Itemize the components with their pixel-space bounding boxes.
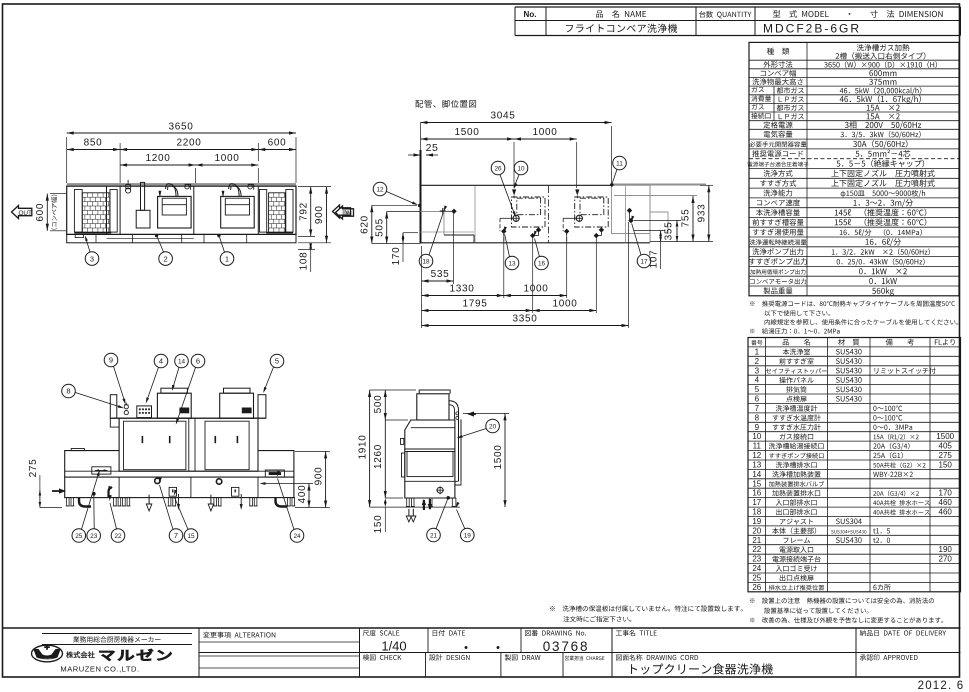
- svg-text:15: 15: [187, 533, 195, 540]
- svg-text:270: 270: [939, 555, 953, 564]
- svg-text:275: 275: [939, 451, 953, 460]
- svg-text:6: 6: [755, 395, 760, 404]
- svg-text:405: 405: [939, 442, 953, 451]
- svg-text:03768: 03768: [543, 639, 590, 654]
- svg-text:No.: No.: [524, 10, 537, 19]
- svg-text:24: 24: [752, 564, 761, 573]
- svg-text:1000: 1000: [552, 299, 577, 310]
- svg-text:16: 16: [538, 260, 546, 267]
- svg-text:10: 10: [752, 432, 761, 441]
- svg-text:2: 2: [164, 254, 168, 263]
- svg-text:108: 108: [299, 252, 310, 271]
- svg-text:500: 500: [373, 395, 384, 414]
- svg-text:620: 620: [360, 215, 371, 234]
- svg-text:17: 17: [752, 498, 761, 507]
- svg-text:792: 792: [299, 202, 310, 221]
- svg-text:8: 8: [66, 387, 70, 396]
- svg-text:3: 3: [755, 366, 760, 375]
- svg-text:21: 21: [430, 532, 438, 539]
- svg-text:3650: 3650: [168, 122, 193, 133]
- svg-text:3350: 3350: [512, 314, 537, 325]
- svg-text:6: 6: [196, 357, 200, 366]
- svg-text:4: 4: [755, 376, 760, 385]
- svg-text:24: 24: [293, 533, 301, 540]
- svg-text:13: 13: [752, 461, 761, 470]
- svg-text:13: 13: [508, 260, 516, 267]
- svg-text:150: 150: [373, 515, 384, 534]
- svg-text:19: 19: [752, 517, 761, 526]
- svg-text:16: 16: [752, 489, 761, 498]
- svg-text:933: 933: [697, 204, 708, 223]
- svg-text:5: 5: [755, 385, 760, 394]
- svg-text:535: 535: [431, 269, 450, 280]
- svg-text:18: 18: [752, 508, 761, 517]
- svg-text:21: 21: [752, 536, 761, 545]
- svg-text:9: 9: [109, 356, 113, 365]
- svg-text:25: 25: [426, 142, 439, 154]
- svg-text:1000: 1000: [214, 153, 239, 164]
- svg-text:3045: 3045: [490, 111, 515, 122]
- svg-text:460: 460: [939, 508, 953, 517]
- svg-text:23: 23: [752, 555, 761, 564]
- svg-text:170: 170: [939, 489, 953, 498]
- svg-text:1500: 1500: [936, 432, 954, 441]
- svg-text:14: 14: [752, 470, 761, 479]
- svg-text:MARUZEN CO.,LTD.: MARUZEN CO.,LTD.: [60, 665, 139, 674]
- svg-text:5: 5: [275, 357, 279, 366]
- svg-text:3: 3: [90, 254, 94, 263]
- svg-text:460: 460: [939, 498, 953, 507]
- svg-text:190: 190: [939, 545, 953, 554]
- svg-text:900: 900: [313, 467, 324, 486]
- svg-text:1: 1: [755, 347, 760, 356]
- svg-text:7: 7: [174, 531, 178, 540]
- svg-text:OUT: OUT: [18, 210, 32, 217]
- svg-text:25: 25: [75, 533, 83, 540]
- svg-text:505: 505: [375, 218, 386, 237]
- svg-text:12: 12: [752, 451, 761, 460]
- svg-text:1200: 1200: [145, 153, 170, 164]
- svg-text:7: 7: [755, 404, 760, 413]
- svg-text:MARUZEN: MARUZEN: [41, 659, 53, 662]
- svg-text:23: 23: [90, 533, 98, 540]
- svg-text:275: 275: [28, 459, 39, 478]
- svg-text:1260: 1260: [373, 444, 384, 469]
- svg-text:170: 170: [391, 247, 402, 266]
- svg-text:1: 1: [225, 254, 229, 263]
- svg-text:20: 20: [489, 423, 497, 430]
- svg-text:850: 850: [84, 138, 103, 149]
- svg-text:1795: 1795: [462, 299, 487, 310]
- svg-text:600: 600: [268, 138, 287, 149]
- svg-text:26: 26: [494, 165, 502, 172]
- svg-text:26: 26: [752, 583, 761, 592]
- svg-text:600: 600: [35, 203, 46, 222]
- svg-text:25: 25: [752, 574, 761, 583]
- svg-text:MDCF2B-6GR: MDCF2B-6GR: [763, 22, 861, 36]
- svg-text:2200: 2200: [176, 138, 201, 149]
- svg-text:107: 107: [649, 250, 660, 269]
- svg-text:8: 8: [755, 413, 760, 422]
- svg-text:900: 900: [314, 205, 325, 224]
- svg-text:IN: IN: [345, 210, 352, 217]
- svg-text:18: 18: [422, 258, 430, 265]
- svg-text:1330: 1330: [449, 284, 474, 295]
- svg-text:1000: 1000: [532, 127, 557, 138]
- svg-text:1500: 1500: [493, 444, 504, 469]
- svg-text:4: 4: [159, 357, 163, 366]
- svg-text:2012. 6: 2012. 6: [918, 680, 965, 692]
- svg-text:20: 20: [752, 526, 761, 535]
- svg-text:1910: 1910: [357, 434, 368, 459]
- svg-text:10: 10: [517, 165, 525, 172]
- svg-text:11: 11: [616, 160, 623, 167]
- svg-text:15: 15: [752, 479, 761, 488]
- svg-text:22: 22: [752, 545, 761, 554]
- svg-text:11: 11: [753, 442, 762, 451]
- svg-text:2: 2: [755, 357, 760, 366]
- svg-text:150: 150: [939, 461, 953, 470]
- svg-text:19: 19: [464, 532, 472, 539]
- svg-text:755: 755: [681, 209, 692, 228]
- svg-text:9: 9: [755, 423, 760, 432]
- svg-text:22: 22: [114, 533, 122, 540]
- svg-text:1000: 1000: [523, 284, 548, 295]
- svg-text:14: 14: [178, 358, 186, 365]
- svg-text:1/40: 1/40: [381, 639, 406, 654]
- svg-text:355: 355: [664, 222, 675, 241]
- svg-text:1500: 1500: [454, 127, 479, 138]
- svg-text:400: 400: [297, 485, 308, 504]
- svg-text:17: 17: [640, 258, 648, 265]
- svg-text:12: 12: [376, 186, 384, 193]
